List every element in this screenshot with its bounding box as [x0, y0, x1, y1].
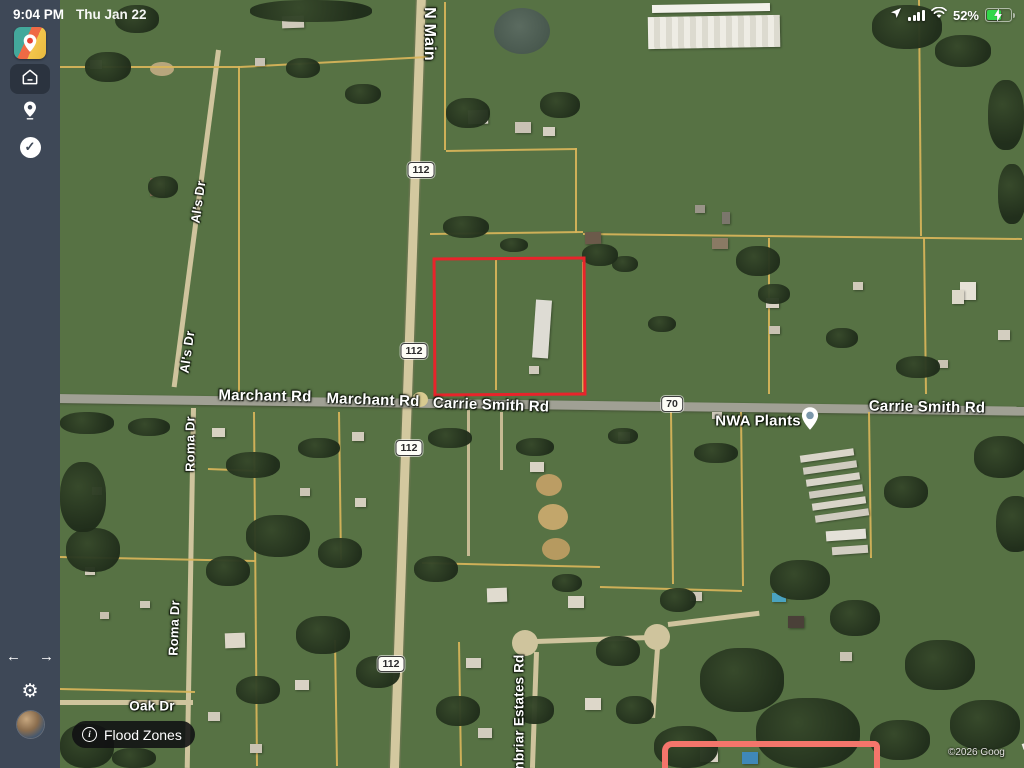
tree-cluster [246, 515, 310, 557]
status-time: 9:04 PM [13, 7, 64, 22]
tree-cluster [660, 588, 696, 612]
sidebar-item-settings[interactable]: ⚙ [0, 680, 60, 703]
location-arrow-icon [890, 6, 902, 24]
tree-cluster [250, 0, 372, 22]
building [998, 330, 1010, 340]
road-label-oak-dr: Oak Dr [129, 699, 174, 714]
building [722, 212, 730, 224]
pond [494, 8, 550, 54]
building [295, 680, 309, 690]
tree-cluster [226, 452, 280, 478]
tree-cluster [296, 616, 350, 654]
poi-pin-icon[interactable] [801, 407, 819, 436]
tree-cluster [428, 428, 472, 448]
road-label-roma-dr: Roma Dr [183, 416, 198, 472]
tree-cluster [736, 246, 780, 276]
tree-cluster [500, 238, 528, 252]
route-shield-70: 70 [661, 396, 683, 412]
route-shield-112: 112 [408, 162, 435, 178]
tree-cluster [112, 748, 156, 768]
info-icon: i [82, 727, 97, 742]
tree-cluster [443, 216, 489, 238]
parcel-line [575, 148, 577, 233]
tree-cluster [905, 640, 975, 690]
tree-cluster [694, 443, 738, 463]
battery-percent: 52% [953, 8, 979, 23]
tree-cluster [66, 528, 120, 572]
sidebar-item-home[interactable] [10, 64, 50, 94]
dirt-circle [150, 62, 174, 76]
tree-cluster [446, 98, 490, 128]
tree-cluster [85, 52, 131, 82]
sidebar-nav-arrows[interactable]: ←→ [0, 648, 60, 665]
tree-cluster [770, 560, 830, 600]
tree-cluster [286, 58, 320, 78]
sidebar: ✓ ←→ ⚙ [0, 0, 60, 768]
building [568, 596, 584, 608]
building [352, 432, 364, 441]
tree-cluster [700, 648, 784, 712]
building [487, 588, 507, 603]
parcel-line [238, 66, 240, 392]
wifi-icon [931, 6, 947, 24]
status-bar-left: 9:04 PM Thu Jan 22 [13, 7, 147, 22]
tree-cluster [950, 700, 1020, 750]
route-shield-112: 112 [378, 656, 405, 672]
flood-zones-button[interactable]: i Flood Zones [72, 721, 195, 748]
route-shield-112: 112 [401, 343, 428, 359]
cellular-signal-icon [908, 10, 925, 21]
tree-cluster [128, 418, 170, 436]
building [840, 652, 852, 661]
tree-cluster [935, 35, 991, 67]
tree-cluster [648, 316, 676, 332]
sidebar-item-checks[interactable]: ✓ [0, 135, 60, 159]
tree-cluster [896, 356, 940, 378]
building [788, 616, 804, 628]
map-copyright: ©2026 Goog [948, 747, 1005, 758]
building [478, 728, 492, 738]
building [648, 15, 781, 49]
driveway [500, 412, 503, 470]
route-shield-112: 112 [396, 440, 423, 456]
building [695, 205, 705, 213]
check-circle-icon: ✓ [20, 137, 41, 158]
building [250, 744, 262, 753]
tree-cluster [318, 538, 362, 568]
building [585, 232, 601, 245]
forward-arrow-icon[interactable]: → [30, 648, 63, 665]
building [300, 488, 310, 496]
map-pin-icon [22, 100, 38, 126]
dirt-circle [536, 474, 562, 496]
building [208, 712, 220, 721]
culdesac-circle [644, 624, 670, 650]
tree-cluster [608, 428, 638, 444]
building [255, 58, 265, 66]
sidebar-item-location[interactable] [0, 100, 60, 126]
tree-cluster [830, 600, 880, 636]
tree-cluster [540, 92, 580, 118]
building [585, 698, 601, 710]
road-label-marchant-rd: Marchant Rd [326, 390, 420, 410]
status-date: Thu Jan 22 [76, 7, 147, 22]
road-label-briar-estates-rd: nbriar Estates Rd [512, 654, 527, 768]
tree-cluster [826, 328, 858, 348]
maps-app-logo-icon[interactable] [14, 27, 46, 59]
tree-cluster [582, 244, 618, 266]
tree-cluster [236, 676, 280, 704]
tree-cluster [552, 574, 582, 592]
tree-cluster [298, 438, 340, 458]
building [212, 428, 225, 437]
tree-cluster [596, 636, 640, 666]
dirt-circle [538, 504, 568, 530]
tree-cluster [996, 496, 1024, 552]
tree-cluster [884, 476, 928, 508]
gear-icon: ⚙ [21, 680, 38, 703]
building [225, 633, 246, 649]
tree-cluster [345, 84, 381, 104]
tree-cluster [436, 696, 480, 726]
tree-cluster [988, 80, 1024, 150]
tree-cluster [516, 438, 554, 456]
user-avatar[interactable] [17, 711, 44, 738]
tree-cluster [148, 176, 178, 198]
building [515, 122, 531, 133]
adjacent-parcel-outline [662, 741, 880, 768]
back-arrow-icon[interactable]: ← [0, 648, 30, 665]
flood-zones-label: Flood Zones [104, 727, 182, 743]
tree-cluster [998, 164, 1024, 224]
poi-label-nwa-plants: NWA Plants [715, 413, 801, 430]
building [769, 326, 780, 334]
status-bar-right: 52% [890, 6, 1012, 24]
building [952, 290, 964, 304]
road-label-roma-dr: Roma Dr [166, 600, 183, 656]
ipad-screen: N Main Al's Dr Al's Dr Roma Dr Roma Dr M… [0, 0, 1024, 768]
building [466, 658, 481, 668]
building [530, 462, 544, 472]
building [140, 601, 150, 608]
building [355, 498, 366, 507]
road-label-marchant-rd: Marchant Rd [218, 387, 311, 406]
road-label-n-main: N Main [420, 7, 438, 61]
tree-cluster [206, 556, 250, 586]
tree-cluster [60, 462, 106, 532]
building [100, 612, 109, 619]
road-label-carrie-smith-rd: Carrie Smith Rd [869, 397, 986, 416]
map-canvas[interactable]: N Main Al's Dr Al's Dr Roma Dr Roma Dr M… [0, 0, 1024, 768]
tree-cluster [616, 696, 654, 724]
tree-cluster [414, 556, 458, 582]
battery-charging-icon [985, 8, 1012, 22]
selected-parcel-outline[interactable] [433, 256, 587, 396]
dirt-circle [542, 538, 570, 560]
home-icon [20, 67, 40, 92]
parcel-line [444, 2, 446, 150]
building [543, 127, 555, 136]
tree-cluster [60, 412, 114, 434]
tree-cluster [974, 436, 1024, 478]
tree-cluster [758, 284, 790, 304]
building [853, 282, 863, 290]
building [712, 238, 728, 249]
